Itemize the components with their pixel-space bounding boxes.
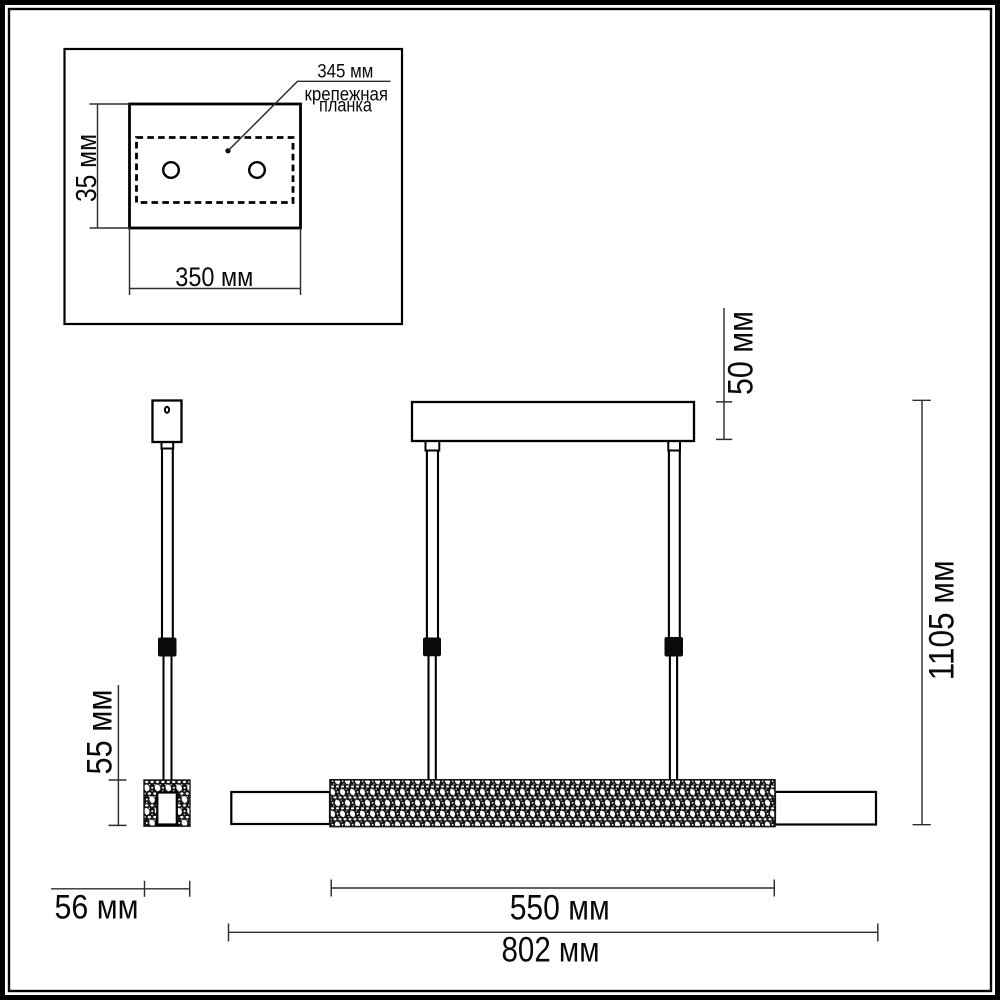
svg-text:550 мм: 550 мм	[510, 889, 610, 928]
svg-text:345 мм: 345 мм	[317, 61, 373, 83]
svg-text:55 мм: 55 мм	[81, 690, 120, 775]
svg-text:802 мм: 802 мм	[502, 931, 600, 970]
svg-text:50 мм: 50 мм	[721, 311, 760, 395]
svg-text:1105 мм: 1105 мм	[923, 560, 962, 680]
svg-text:35 мм: 35 мм	[71, 134, 103, 202]
svg-text:56 мм: 56 мм	[55, 889, 139, 927]
svg-text:350 мм: 350 мм	[175, 262, 253, 292]
svg-text:планка: планка	[319, 95, 372, 116]
